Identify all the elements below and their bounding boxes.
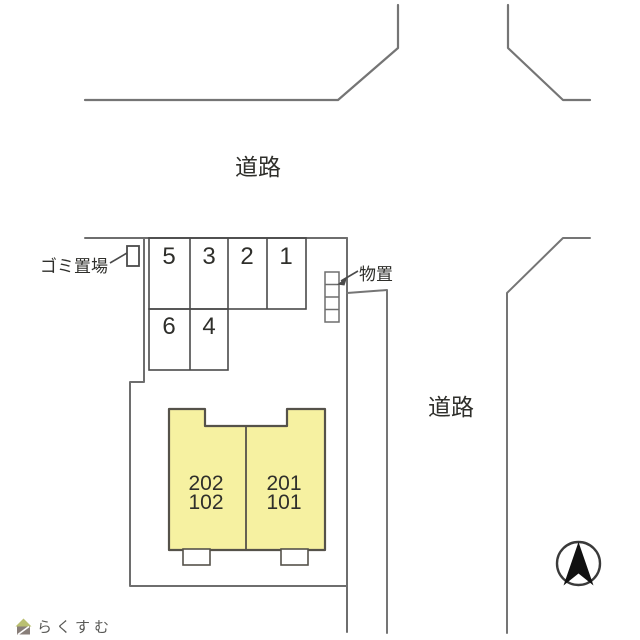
- site-plan-diagram: 道路 道路 5 3 2 1 6 4 ゴミ置場: [0, 0, 640, 640]
- entrance-step-right: [281, 549, 308, 565]
- unit-101-label: 101: [266, 491, 301, 514]
- parking-space-5-label: 5: [162, 243, 175, 270]
- road-right-label: 道路: [428, 394, 474, 420]
- house-roof: [16, 619, 32, 627]
- parking-row2-outline: [149, 309, 228, 370]
- road-top-label: 道路: [235, 154, 281, 180]
- unit-102-label: 102: [188, 491, 223, 514]
- storage-label: 物置: [359, 265, 393, 284]
- road-top-boundary: [85, 5, 590, 100]
- garbage-area-label: ゴミ置場: [40, 256, 108, 276]
- entrance-step-left: [183, 549, 210, 565]
- road-right-boundary: [347, 238, 590, 633]
- parking-space-6-label: 6: [162, 313, 175, 340]
- storage-shed: [325, 272, 339, 322]
- road-top-right-line: [508, 5, 590, 100]
- parking-space-2-label: 2: [240, 243, 253, 270]
- storage-area: 物置: [325, 265, 393, 322]
- garbage-box: [127, 246, 139, 266]
- garbage-connector-line: [110, 253, 127, 263]
- parking-space-3-label: 3: [202, 243, 215, 270]
- garbage-area: ゴミ置場: [40, 246, 139, 276]
- parking-space-1-label: 1: [279, 243, 292, 270]
- road-top-left-line: [85, 5, 398, 100]
- watermark-brand-text: らくすむ: [37, 619, 113, 636]
- building: 202 102 201 101: [169, 409, 325, 565]
- house-logo-icon: [16, 619, 32, 635]
- watermark-logo: らくすむ: [16, 619, 114, 637]
- road-right-near-line: [347, 290, 387, 633]
- north-arrow-icon: [557, 542, 600, 586]
- storage-connector-line: [341, 271, 358, 281]
- parking-space-4-label: 4: [202, 313, 215, 340]
